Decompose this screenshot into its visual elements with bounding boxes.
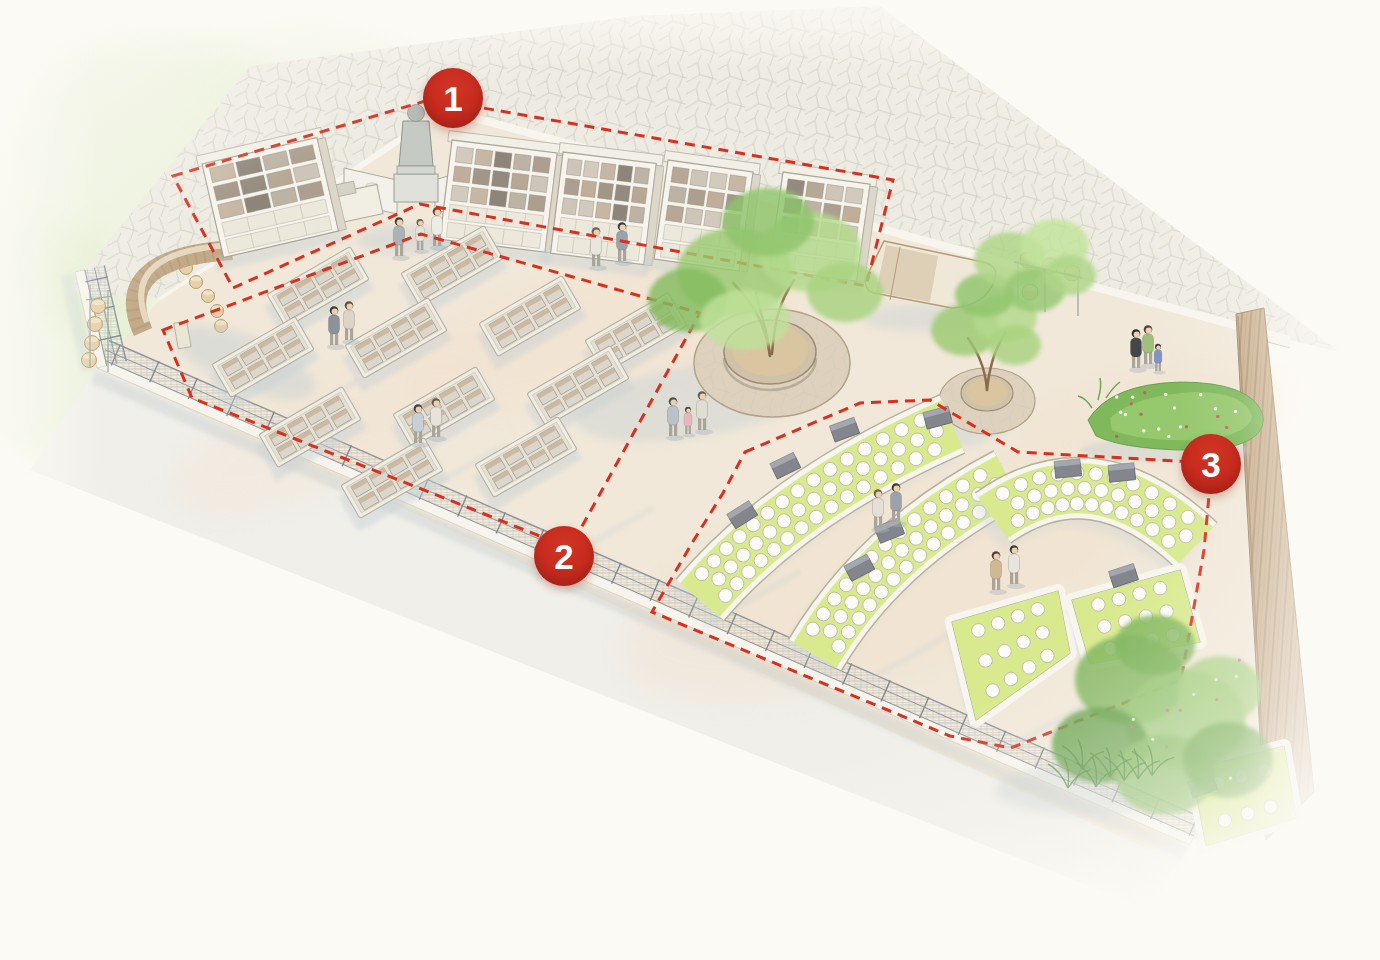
site-plan-drawing bbox=[0, 0, 1380, 960]
zone-2-marker-label: 2 bbox=[554, 539, 573, 574]
zone-1-marker-badge[interactable]: 1 bbox=[423, 68, 483, 128]
plot-marker-stone bbox=[1108, 463, 1136, 483]
cemetery-site-illustration: 1 2 3 bbox=[0, 0, 1380, 960]
zone-3-marker-label: 3 bbox=[1201, 447, 1220, 482]
plot-marker-stone bbox=[1054, 459, 1082, 479]
zone-1-marker-label: 1 bbox=[443, 81, 462, 116]
zone-3-marker-badge[interactable]: 3 bbox=[1181, 434, 1241, 494]
zone-2-marker-badge[interactable]: 2 bbox=[534, 526, 594, 586]
